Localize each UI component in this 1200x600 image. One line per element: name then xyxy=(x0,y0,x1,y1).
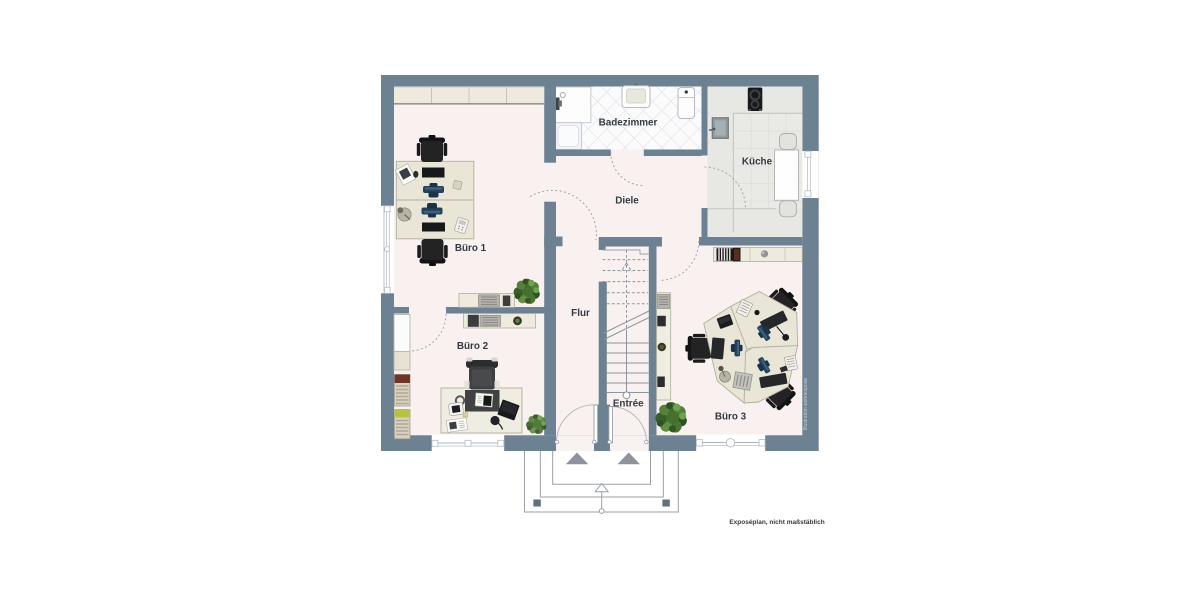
svg-text:Illustration wohnexpose: Illustration wohnexpose xyxy=(803,378,809,430)
svg-text:Badezimmer: Badezimmer xyxy=(599,118,658,129)
svg-text:Küche: Küche xyxy=(742,157,773,168)
svg-text:Flur: Flur xyxy=(571,308,590,319)
svg-text:Exposéplan, nicht maßstäblich: Exposéplan, nicht maßstäblich xyxy=(729,519,824,526)
svg-text:Büro 3: Büro 3 xyxy=(715,412,747,423)
svg-text:Büro 2: Büro 2 xyxy=(457,341,489,352)
svg-text:Büro 1: Büro 1 xyxy=(455,243,487,254)
svg-text:Diele: Diele xyxy=(615,196,639,207)
svg-text:Entrée: Entrée xyxy=(613,399,644,410)
